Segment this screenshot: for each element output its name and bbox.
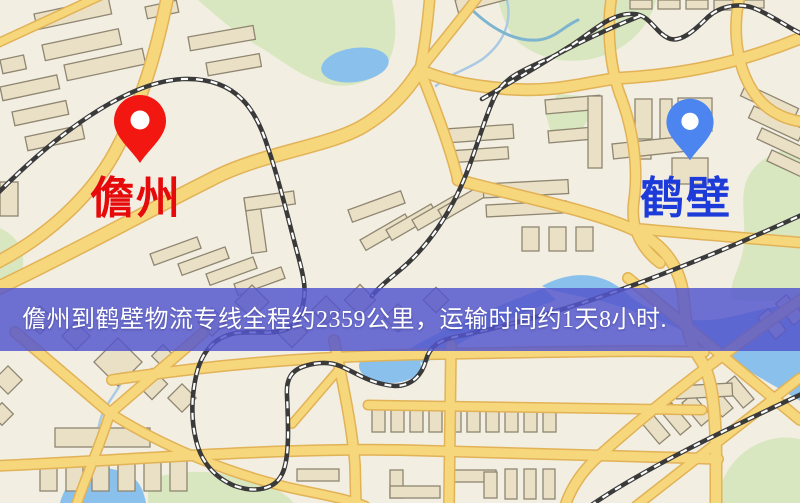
map-screenshot: 儋州 鹤壁 儋州到鹤壁物流专线全程约2359公里，运输时间约1天8小时. <box>0 0 800 503</box>
origin-label: 儋州 <box>51 176 221 222</box>
map-canvas <box>0 0 800 503</box>
route-info-banner: 儋州到鹤壁物流专线全程约2359公里，运输时间约1天8小时. <box>0 288 800 351</box>
destination-pin-hole <box>681 113 698 130</box>
route-info-text: 儋州到鹤壁物流专线全程约2359公里，运输时间约1天8小时. <box>0 288 800 352</box>
origin-map-pin-icon <box>108 89 172 169</box>
destination-map-pin-icon <box>661 93 719 166</box>
origin-pin-hole <box>131 111 150 130</box>
destination-label: 鹤壁 <box>601 176 771 222</box>
